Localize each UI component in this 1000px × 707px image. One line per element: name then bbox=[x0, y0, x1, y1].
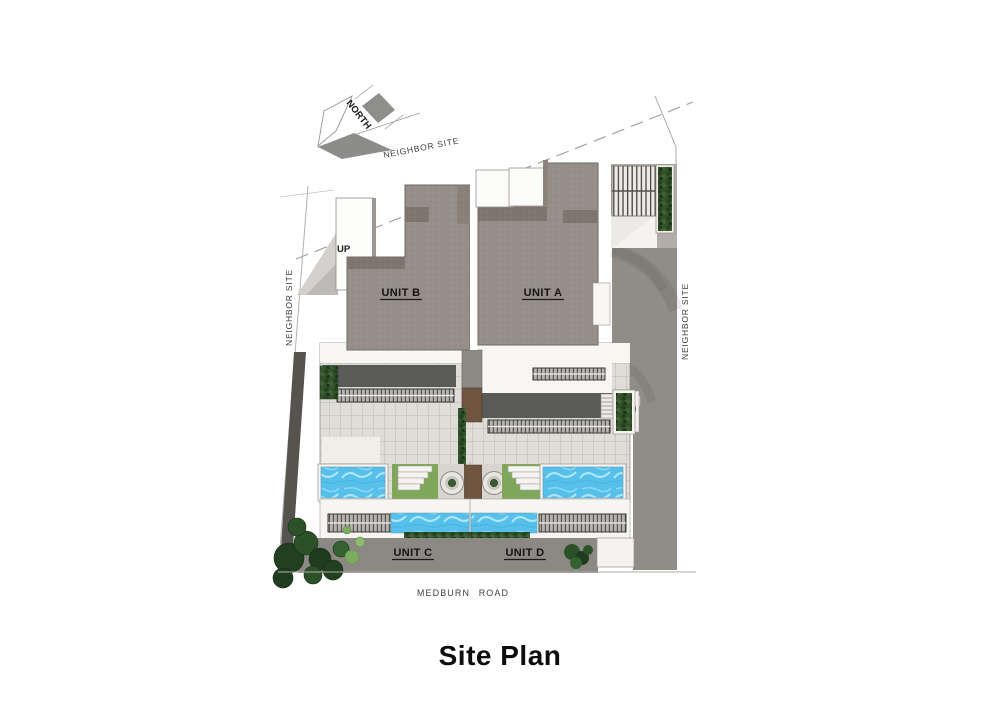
bench-right-bottom bbox=[488, 420, 610, 433]
water-feature-right bbox=[471, 513, 537, 533]
unit-a-roof bbox=[470, 160, 610, 350]
page-title: Site Plan bbox=[0, 640, 1000, 672]
boundary-left-label: NEIGHBOR SITE bbox=[284, 269, 294, 346]
pool-left bbox=[321, 467, 385, 498]
unit-b-label: UNIT B bbox=[381, 287, 420, 299]
unit-a-skylight-1 bbox=[476, 170, 513, 207]
pool-right bbox=[543, 467, 623, 498]
site-plan-drawing: NORTH bbox=[0, 0, 1000, 707]
driveway-entry-pad bbox=[597, 538, 634, 567]
up-label: UP bbox=[337, 244, 351, 255]
left-hedge bbox=[320, 366, 338, 399]
central-shaft bbox=[462, 350, 482, 388]
north-arrow-tick-2 bbox=[385, 115, 403, 129]
unit-a-label: UNIT A bbox=[524, 287, 563, 299]
north-arrow-tick-1 bbox=[355, 85, 373, 99]
boundary-top-label: NEIGHBOR SITE bbox=[382, 135, 459, 160]
central-plant-strip bbox=[458, 408, 466, 465]
right-deck-steps bbox=[601, 394, 613, 418]
roof-terrace bbox=[611, 164, 677, 248]
right-hedge bbox=[616, 393, 632, 431]
boundary-right-corner-line bbox=[655, 96, 676, 147]
round-planter-left bbox=[441, 472, 464, 495]
bench-left bbox=[337, 389, 454, 402]
unit-c-label: UNIT C bbox=[393, 547, 432, 559]
left-deck bbox=[322, 365, 456, 387]
central-planter-bottom bbox=[462, 465, 482, 502]
unit-d-label: UNIT D bbox=[505, 547, 544, 559]
front-planter-right bbox=[539, 514, 626, 532]
terrace-hedge bbox=[658, 167, 672, 231]
water-feature-left bbox=[391, 513, 469, 533]
right-deck bbox=[478, 393, 612, 418]
road-label: MEDBURN ROAD bbox=[417, 588, 509, 598]
boundary-right-label: NEIGHBOR SITE bbox=[680, 283, 690, 360]
paving-patch bbox=[322, 437, 380, 463]
bench-right-top bbox=[533, 368, 605, 380]
front-planter-left bbox=[328, 514, 391, 532]
unit-a-skylight-2 bbox=[509, 168, 547, 206]
site-plan-page: NORTH bbox=[0, 0, 1000, 707]
